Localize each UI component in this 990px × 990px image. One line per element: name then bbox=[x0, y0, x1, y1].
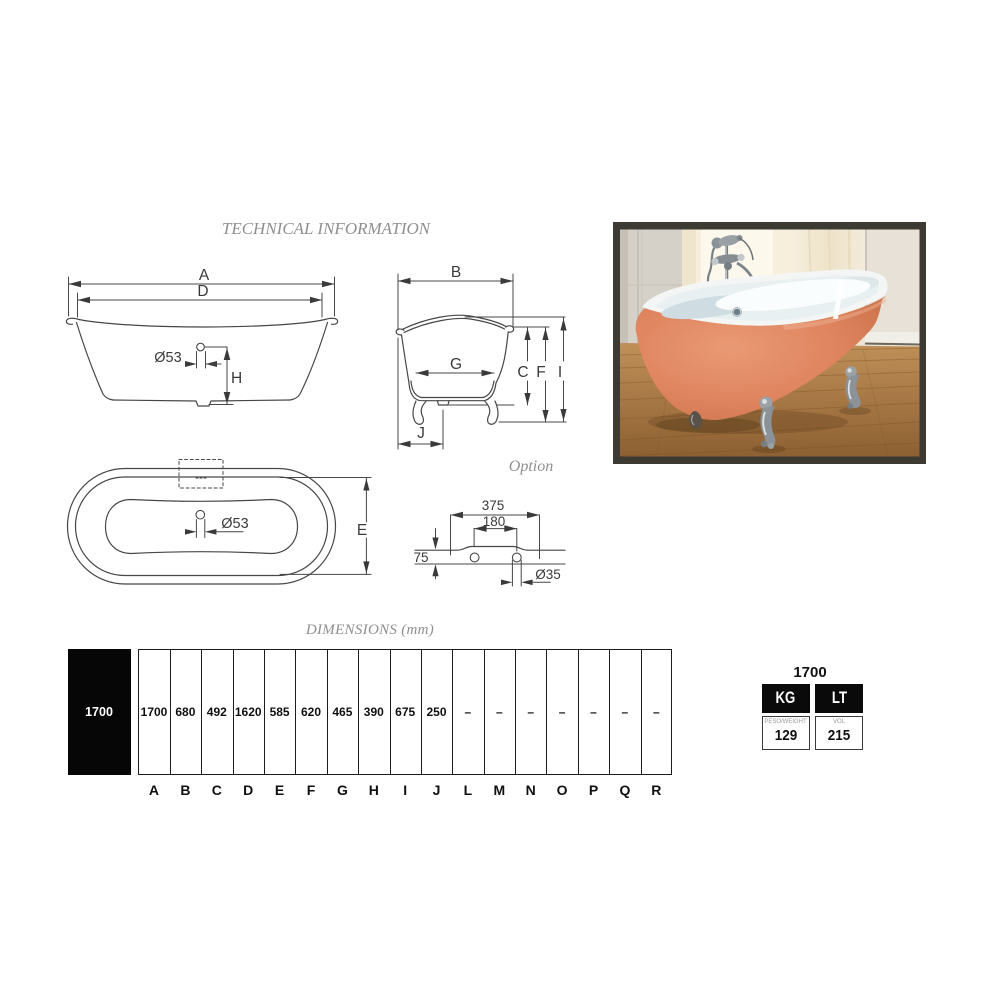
svg-text:G: G bbox=[450, 356, 462, 373]
svg-text:H: H bbox=[231, 370, 242, 387]
svg-text:B: B bbox=[451, 264, 461, 281]
svg-text:J: J bbox=[417, 425, 425, 442]
svg-text:E: E bbox=[357, 522, 367, 539]
svg-text:A: A bbox=[199, 267, 210, 284]
svg-text:375: 375 bbox=[482, 498, 505, 513]
svg-text:F: F bbox=[536, 364, 545, 381]
svg-text:75: 75 bbox=[413, 550, 428, 565]
svg-text:I: I bbox=[558, 364, 562, 381]
svg-text:D: D bbox=[197, 283, 208, 300]
svg-text:180: 180 bbox=[483, 514, 506, 529]
svg-text:Ø35: Ø35 bbox=[535, 567, 561, 582]
svg-text:Ø53: Ø53 bbox=[221, 516, 248, 532]
svg-text:C: C bbox=[517, 364, 528, 381]
svg-text:Ø53: Ø53 bbox=[154, 350, 181, 366]
